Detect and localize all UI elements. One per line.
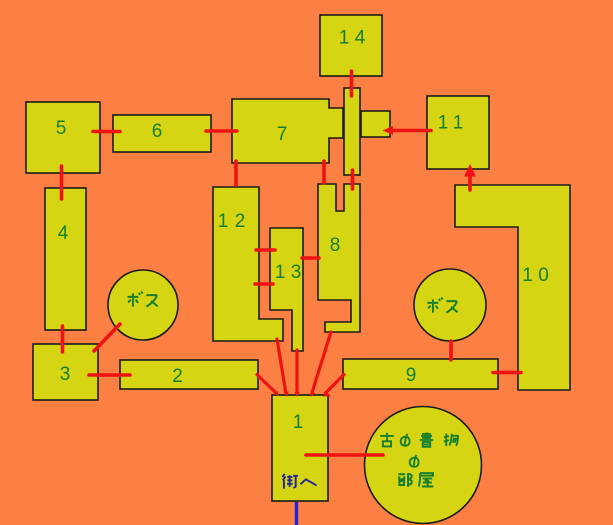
svg-text:4: 4 bbox=[355, 28, 366, 49]
svg-text:2: 2 bbox=[235, 211, 246, 232]
svg-text:1: 1 bbox=[453, 113, 464, 134]
svg-text:1: 1 bbox=[218, 211, 229, 232]
svg-text:1: 1 bbox=[522, 265, 533, 286]
svg-text:1: 1 bbox=[339, 28, 350, 49]
svg-text:7: 7 bbox=[277, 124, 288, 145]
svg-text:3: 3 bbox=[291, 262, 302, 283]
svg-text:8: 8 bbox=[330, 235, 341, 256]
svg-text:1: 1 bbox=[293, 412, 304, 433]
svg-text:4: 4 bbox=[58, 223, 69, 244]
svg-text:1: 1 bbox=[275, 262, 286, 283]
svg-text:3: 3 bbox=[60, 364, 71, 385]
svg-text:5: 5 bbox=[56, 118, 67, 139]
svg-text:0: 0 bbox=[538, 265, 549, 286]
svg-text:9: 9 bbox=[406, 365, 417, 386]
svg-text:6: 6 bbox=[152, 121, 163, 142]
svg-text:2: 2 bbox=[172, 366, 183, 387]
svg-text:1: 1 bbox=[438, 113, 449, 134]
